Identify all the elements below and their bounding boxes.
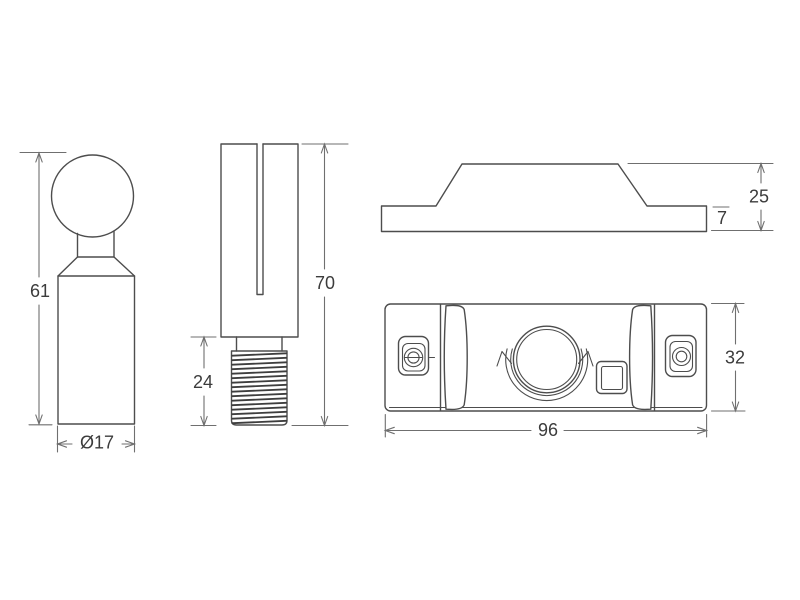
release-button	[597, 362, 628, 394]
dim-knob-diameter: Ø17	[58, 426, 135, 453]
dim-housing-height: 32	[712, 304, 746, 412]
knob-shoulder	[58, 257, 135, 276]
profile-outline	[382, 164, 707, 232]
dim-knob-height: 61	[20, 153, 66, 425]
pin-side-view: 70 24	[191, 144, 348, 426]
left-screw	[399, 337, 435, 376]
rotation-arrowhead-left	[497, 352, 512, 367]
button-inner	[602, 367, 623, 390]
dim-label-base-thickness: 7	[717, 208, 727, 228]
dim-thread-length: 24	[191, 337, 216, 426]
dim-pin-length: 70	[292, 144, 348, 426]
dim-label-housing-height: 32	[725, 348, 745, 368]
knob-side-view: 61 Ø17	[20, 153, 135, 453]
knob-cylinder	[58, 276, 135, 424]
knob-ball	[52, 155, 134, 237]
dial-outer-circle	[513, 326, 580, 393]
dial	[497, 326, 593, 400]
rotation-arc-inner	[511, 349, 583, 396]
dim-housing-width: 96	[385, 415, 706, 441]
left-clip-wing	[444, 305, 467, 409]
dial-inner-circle	[517, 330, 577, 390]
knob-outline	[52, 155, 135, 424]
dim-profile-height: 25	[628, 164, 773, 231]
right-clip-wing	[630, 305, 653, 409]
screw-head-inner	[676, 351, 687, 362]
screw-head	[673, 348, 691, 366]
pin-outline	[221, 144, 298, 425]
dim-label-pin-length: 70	[315, 273, 335, 293]
screw-boss-inner	[670, 342, 693, 372]
housing-profile-view: 25 7	[382, 164, 774, 232]
housing-dividers	[441, 305, 655, 411]
dim-label-housing-width: 96	[538, 420, 558, 440]
technical-drawing: 61 Ø17 70 24	[0, 0, 800, 600]
dim-label-knob-height: 61	[30, 281, 50, 301]
drawing-svg: 61 Ø17 70 24	[0, 0, 800, 600]
right-screw	[666, 336, 697, 377]
pin-body	[221, 144, 298, 337]
pin-slot	[257, 144, 263, 295]
dim-base-thickness: 7	[713, 207, 729, 228]
thread-lines	[232, 353, 286, 423]
housing-front-view: 96 32	[385, 304, 745, 441]
pin-neck	[237, 337, 283, 351]
dim-label-knob-diameter: Ø17	[80, 433, 114, 453]
dim-label-thread-length: 24	[193, 372, 213, 392]
dim-label-profile-height: 25	[749, 187, 769, 207]
